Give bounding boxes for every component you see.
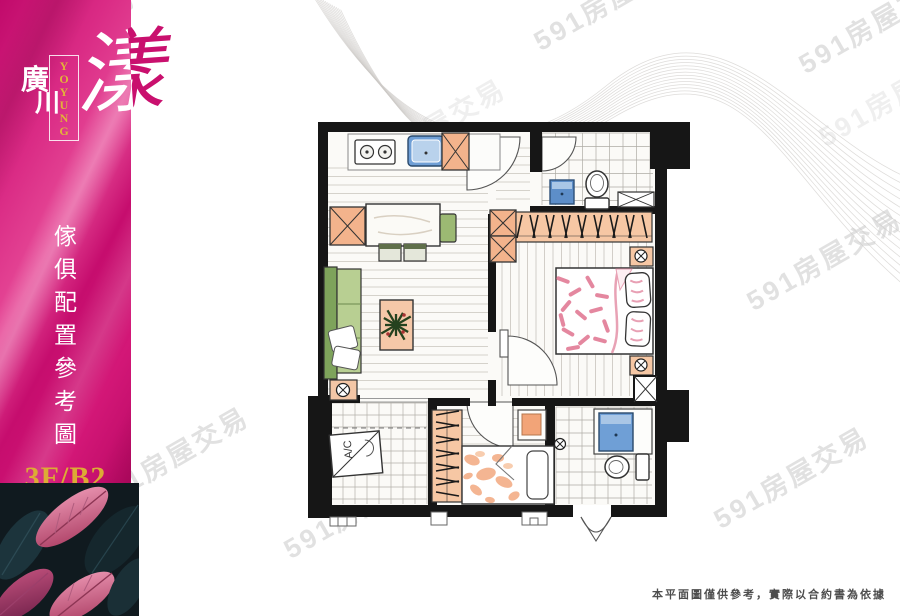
brand-en-letter: O [59,73,68,85]
vtitle-char: 俱 [54,258,77,281]
toilet [585,171,609,209]
sofa [324,267,361,379]
bedroom2-nightstand [518,410,546,440]
kitchen-counter [348,133,500,170]
wall-bottom-left-block [308,396,332,518]
kitchen-cabinet-x [442,133,469,170]
pillow [625,272,651,308]
stage: 591房屋交易591房屋交易591房屋交易591房屋交易591房屋交易591房屋… [0,0,900,616]
watermark-text: 591房屋交易 [810,34,900,155]
sofa-pillow [331,346,360,371]
wall-top-right-block [650,122,690,169]
sofa-side-table [330,380,357,400]
wall-right-protrusion [667,390,689,442]
wall-right [655,165,667,513]
chair-back [404,244,426,249]
bath1-sink [550,180,574,204]
shaft-x-box [634,376,657,402]
ac-unit: A/C [329,431,382,477]
bath2-sink [599,413,633,451]
brand-logo: 廣 川 Y O Y U N G 漾 漾 [0,0,220,170]
bath1-cabinet-x [618,192,654,207]
bedroom2-wardrobe [432,410,462,502]
ac-label: A/C [342,440,356,459]
master-wardrobe [516,212,652,242]
brand-en-letter: Y [60,86,69,98]
dining-chair-right [440,214,456,242]
nightstand [630,247,653,266]
vtitle-char: 傢 [54,225,77,248]
watermark-text: 591房屋交易 [525,0,695,58]
coffee-table-plant [380,300,413,350]
vtitle-char: 考 [54,390,77,413]
brand-en-letter: U [60,99,69,111]
pillow [625,311,651,346]
watermark-text: 591房屋交易 [705,416,875,537]
vtitle-char: 圖 [54,423,77,446]
leaves-photo [0,483,139,616]
dining-table [366,204,440,246]
vtitle-char: 置 [54,324,77,347]
vtitle-char: 參 [54,357,77,380]
bath2-door-swing [581,517,611,541]
floor-plan: A/C [300,110,710,560]
watermark-text: 591房屋交易 [738,198,900,319]
brand-en-letter: Y [60,60,69,72]
wall-top [318,122,658,132]
brand-en-letter: N [60,112,69,124]
bedroom2-bed [462,446,554,504]
chair-back [379,244,401,249]
kitchen-sink [408,136,444,166]
dining-cabinet-x [330,207,365,245]
master-door-leaf [500,330,508,357]
watermark-text: 591房屋交易 [790,0,900,81]
wall-entry-stub [530,126,542,172]
disclaimer-text: 本平面圖僅供參考，實際以合約書為依據 [652,586,886,602]
entry-closet [490,210,516,262]
pillow [527,451,548,499]
furniture-note-vertical-title: 傢 俱 配 置 參 考 圖 [0,225,131,446]
vtitle-char: 配 [54,291,77,314]
wall-bottom-right [611,505,667,517]
nightstand [630,356,653,375]
wall-master-west-lower [488,380,496,406]
master-bed [556,268,653,354]
stove [355,140,395,164]
brand-en-letter: G [59,125,68,137]
